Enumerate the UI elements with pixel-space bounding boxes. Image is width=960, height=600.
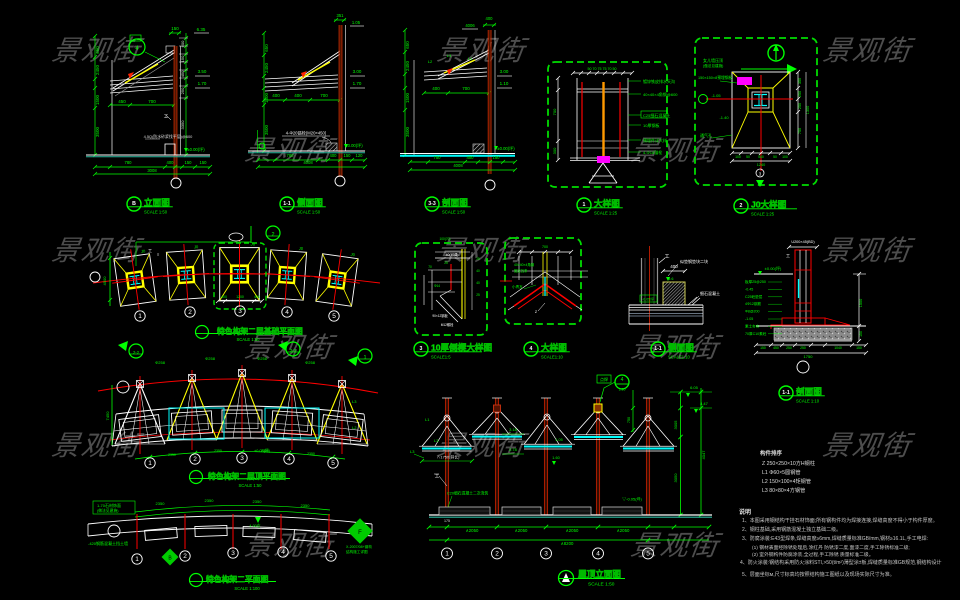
- svg-text:2.78: 2.78: [509, 447, 518, 452]
- svg-text:±0.00(坪): ±0.00(坪): [765, 265, 782, 271]
- svg-text:150×150×8预埋钢板: 150×150×8预埋钢板: [698, 75, 733, 80]
- svg-text:C20细石混凝土二次浇筑: C20细石混凝土二次浇筑: [447, 491, 488, 496]
- svg-text:4008: 4008: [453, 163, 463, 168]
- svg-text:4Φ12钢筋: 4Φ12钢筋: [745, 301, 761, 306]
- svg-text:3: 3: [544, 551, 548, 558]
- svg-text:C25细石混凝土: C25细石混凝土: [643, 112, 670, 118]
- svg-text:1:10: 1:10: [619, 388, 626, 392]
- svg-text:3.18: 3.18: [509, 427, 518, 432]
- svg-text:150: 150: [760, 346, 766, 350]
- svg-text:构件排序: 构件排序: [760, 449, 783, 457]
- svg-text:5: 5: [331, 460, 335, 467]
- svg-text:立面图: 立面图: [144, 197, 170, 208]
- svg-text:L1: L1: [468, 56, 473, 61]
- svg-text:大样图: 大样图: [594, 198, 620, 209]
- svg-text:3: 3: [231, 550, 235, 557]
- svg-text:4: 4: [285, 309, 289, 316]
- svg-text:300: 300: [552, 147, 557, 154]
- svg-text:L2: L2: [352, 425, 357, 430]
- svg-text:2450: 2450: [264, 62, 269, 73]
- svg-text:150: 150: [344, 153, 352, 158]
- svg-text:4.00右: 4.00右: [249, 523, 260, 528]
- svg-text:1500: 1500: [264, 92, 269, 103]
- svg-text:400: 400: [272, 93, 280, 98]
- svg-text:SCALE 1:50: SCALE 1:50: [442, 210, 466, 215]
- svg-text:∧2050: ∧2050: [466, 528, 479, 533]
- svg-text:工: 工: [148, 248, 152, 253]
- svg-text:∧2050: ∧2050: [617, 528, 630, 533]
- svg-text:120: 120: [356, 153, 364, 158]
- svg-text:2450: 2450: [95, 64, 100, 75]
- svg-text:2: 2: [193, 456, 197, 463]
- svg-text:700: 700: [542, 245, 548, 249]
- svg-text:1-1: 1-1: [654, 346, 662, 352]
- svg-text:1、本图采用钢结构干挂石材饰面;所有钢构件均为焊接连接,焊缝: 1、本图采用钢结构干挂石材饰面;所有钢构件均为焊接连接,焊缝高度不得小于构件厚度…: [742, 517, 938, 524]
- svg-text:450: 450: [180, 70, 185, 77]
- svg-text:750: 750: [798, 128, 802, 134]
- svg-text:SCALE1:10: SCALE1:10: [541, 355, 564, 360]
- svg-text:70厚C10素砼: 70厚C10素砼: [745, 331, 767, 336]
- svg-text:L2: L2: [428, 59, 433, 64]
- svg-text:景观街: 景观街: [821, 235, 917, 266]
- svg-text:1500: 1500: [95, 94, 100, 105]
- svg-text:2450: 2450: [405, 60, 410, 71]
- svg-text:L1: L1: [425, 417, 430, 422]
- svg-text:750: 750: [627, 417, 631, 423]
- svg-text:400: 400: [486, 16, 494, 21]
- svg-text:1.10: 1.10: [500, 81, 509, 86]
- svg-text:4008: 4008: [303, 160, 313, 165]
- svg-text:3050: 3050: [673, 473, 678, 483]
- svg-text:150: 150: [859, 331, 863, 337]
- svg-text:L3: L3: [352, 399, 357, 404]
- svg-text:2350: 2350: [253, 499, 263, 504]
- svg-text:侧面图: 侧面图: [297, 197, 323, 208]
- svg-text:4: 4: [287, 456, 291, 463]
- svg-text:∧2050: ∧2050: [566, 528, 579, 533]
- svg-text:B: B: [132, 201, 136, 207]
- svg-text:40×40×4角钢@600: 40×40×4角钢@600: [643, 91, 678, 97]
- svg-text:400: 400: [294, 93, 302, 98]
- svg-text:SCALE 1:25: SCALE 1:25: [594, 211, 618, 216]
- svg-text:1-1: 1-1: [283, 201, 291, 207]
- svg-text:400: 400: [221, 295, 227, 299]
- svg-text:SCALE 1:50: SCALE 1:50: [236, 337, 260, 342]
- svg-text:25: 25: [444, 261, 448, 265]
- svg-text:50: 50: [773, 155, 777, 159]
- svg-text:C25砼垫层: C25砼垫层: [745, 294, 763, 299]
- svg-text:7450: 7450: [105, 411, 110, 421]
- svg-text:工: 工: [164, 114, 169, 119]
- svg-text:固定瓦条: 固定瓦条: [514, 268, 528, 273]
- svg-text:Φ14: Φ14: [434, 284, 440, 288]
- svg-text:400: 400: [432, 86, 440, 91]
- svg-text:侧面图: 侧面图: [668, 342, 694, 353]
- svg-text:3350: 3350: [180, 120, 185, 130]
- svg-text:素土夯实: 素土夯实: [745, 323, 760, 328]
- svg-text:400: 400: [330, 153, 338, 158]
- svg-text:2、钢柱基础,采用钢筋混凝土独立基础二级。: 2、钢柱基础,采用钢筋混凝土独立基础二级。: [742, 526, 841, 533]
- svg-text:250: 250: [180, 87, 185, 94]
- svg-text:600: 600: [180, 40, 185, 47]
- svg-text:3008: 3008: [147, 168, 157, 173]
- svg-text:650: 650: [264, 44, 269, 52]
- svg-text:100: 100: [735, 155, 741, 159]
- svg-text:±0.00(坪): ±0.00(坪): [187, 146, 205, 153]
- svg-text:450: 450: [773, 346, 779, 350]
- svg-text:780: 780: [125, 160, 133, 165]
- svg-text:400: 400: [254, 295, 260, 299]
- svg-text:女儿墙压顶: 女儿墙压顶: [703, 57, 723, 63]
- svg-text:351: 351: [337, 13, 345, 18]
- svg-text:SCALE 1:25: SCALE 1:25: [751, 212, 775, 217]
- svg-text:3500: 3500: [95, 126, 100, 137]
- svg-text:100: 100: [782, 155, 788, 159]
- svg-text:预埋件详大样: 预埋件详大样: [643, 137, 667, 143]
- svg-text:3、防腐涂装:E43型焊条,焊缝高度≥6mm,焊缝质量标准G: 3、防腐涂装:E43型焊条,焊缝高度≥6mm,焊缝质量标准GB/mm,钢材≥16…: [742, 535, 928, 542]
- svg-text:4.47: 4.47: [700, 401, 709, 406]
- svg-text:J0大样图: J0大样图: [751, 199, 787, 210]
- svg-text:2: 2: [740, 203, 743, 209]
- svg-text:2350: 2350: [261, 449, 269, 453]
- svg-text:3.00: 3.00: [500, 69, 509, 74]
- svg-text:150: 150: [200, 160, 208, 165]
- svg-text:2: 2: [183, 553, 187, 560]
- svg-text:1-70石材饰面: 1-70石材饰面: [97, 502, 121, 508]
- svg-text:景观街: 景观街: [243, 530, 339, 561]
- svg-text:5: 5: [332, 313, 336, 320]
- svg-text:700: 700: [320, 93, 328, 98]
- svg-text:10厚钢板: 10厚钢板: [643, 122, 659, 128]
- svg-text:F: F: [358, 530, 362, 536]
- svg-text:Φ258: Φ258: [155, 360, 166, 365]
- svg-text:40×40×4角钢: 40×40×4角钢: [514, 262, 535, 267]
- svg-text:3.00: 3.00: [353, 69, 362, 74]
- svg-text:540: 540: [758, 155, 764, 159]
- svg-text:1: 1: [445, 551, 449, 558]
- svg-text:±0.00(坪): ±0.00(坪): [345, 142, 363, 149]
- svg-text:特色构架二层基础平面图: 特色构架二层基础平面图: [217, 326, 303, 336]
- svg-text:景观街: 景观街: [50, 235, 146, 266]
- svg-text:150: 150: [856, 346, 862, 350]
- svg-text:4.5Q(防水砂浆找平层)@600: 4.5Q(防水砂浆找平层)@600: [144, 134, 194, 139]
- svg-text:250: 250: [798, 91, 802, 97]
- svg-text:40: 40: [476, 281, 480, 285]
- svg-text:Φ258: Φ258: [305, 360, 316, 365]
- svg-text:3: 3: [240, 455, 244, 462]
- svg-text:2350: 2350: [168, 453, 176, 457]
- svg-text:∧8200: ∧8200: [561, 541, 574, 546]
- svg-text:L3 80×80×4方钢管: L3 80×80×4方钢管: [762, 486, 805, 494]
- svg-text:3: 3: [420, 346, 423, 352]
- svg-text:U200×45(BD): U200×45(BD): [791, 240, 815, 244]
- svg-text:(做法见建施): (做法见建施): [97, 508, 119, 513]
- svg-text:细石混凝土: 细石混凝土: [700, 290, 720, 296]
- svg-text:景观街: 景观街: [821, 35, 917, 66]
- svg-text:1: 1: [138, 313, 142, 320]
- svg-text:4: 4: [621, 377, 624, 383]
- svg-text:±0.00(坪): ±0.00(坪): [497, 145, 515, 152]
- svg-text:Z 250×250×10方H钢柱: Z 250×250×10方H钢柱: [762, 459, 815, 467]
- svg-text:SCALE 1:50: SCALE 1:50: [297, 210, 321, 215]
- svg-text:250: 250: [786, 346, 792, 350]
- svg-text:SCALE 1:50: SCALE 1:50: [588, 582, 615, 588]
- svg-text:L3: L3: [434, 438, 439, 443]
- svg-text:景观街: 景观街: [435, 35, 531, 66]
- svg-text:3005: 3005: [673, 420, 678, 430]
- svg-text:(做法见建施): (做法见建施): [703, 63, 723, 68]
- svg-text:70: 70: [428, 265, 432, 269]
- svg-text:-1.40: -1.40: [719, 115, 729, 120]
- svg-text:1500: 1500: [859, 299, 863, 307]
- svg-text:700: 700: [552, 108, 557, 115]
- svg-text:▽-0.05(坪): ▽-0.05(坪): [622, 496, 642, 502]
- svg-text:L2 150×100×4矩钢管: L2 150×100×4矩钢管: [762, 477, 811, 485]
- svg-text:1.05: 1.05: [555, 438, 562, 442]
- svg-text:5: 5: [329, 553, 333, 560]
- svg-text:Φ258: Φ258: [205, 356, 216, 361]
- svg-text:450: 450: [118, 99, 126, 104]
- svg-text:小青瓦: 小青瓦: [512, 284, 523, 289]
- svg-text:4、防火涂装:钢结构采用防火涂料STI,>50(t/m²)薄: 4、防火涂装:钢结构采用防火涂料STI,>50(t/m²)薄型涂±板,焊缝质量标…: [740, 559, 942, 566]
- svg-text:板厚25@250: 板厚25@250: [745, 279, 766, 284]
- svg-text:SCALE 1:100: SCALE 1:100: [234, 586, 260, 591]
- svg-text:-1.05: -1.05: [745, 317, 753, 321]
- svg-text:M12螺栓: M12螺栓: [441, 322, 454, 327]
- svg-text:结构施工详图: 结构施工详图: [346, 549, 368, 554]
- svg-text:2: 2: [271, 232, 274, 238]
- svg-text:650: 650: [405, 41, 410, 49]
- svg-text:5: 5: [646, 551, 650, 558]
- svg-text:2350: 2350: [205, 498, 215, 503]
- svg-text:1500: 1500: [405, 92, 410, 103]
- svg-text:-0.45: -0.45: [745, 287, 753, 291]
- svg-text:L3: L3: [447, 53, 452, 58]
- svg-text:∧2050: ∧2050: [515, 528, 528, 533]
- svg-text:SCALE1:5: SCALE1:5: [431, 355, 451, 360]
- svg-text:1: 1: [135, 556, 139, 563]
- svg-text:3500: 3500: [405, 126, 410, 137]
- svg-text:50 70 75 75 70 50: 50 70 75 75 70 50: [588, 67, 617, 71]
- svg-text:4047: 4047: [701, 450, 706, 460]
- svg-text:通气孔: 通气孔: [700, 132, 712, 138]
- svg-text:(2) 室外钢构件防腐涂装,全过程,手工除锈 质量标准二级。: (2) 室外钢构件防腐涂装,全过程,手工除锈 质量标准二级。: [752, 551, 874, 558]
- svg-text:L1 Φ60×5圆钢管: L1 Φ60×5圆钢管: [762, 468, 801, 476]
- svg-text:400: 400: [167, 160, 175, 165]
- svg-text:4: 4: [596, 551, 600, 558]
- svg-text:屋顶立面图: 屋顶立面图: [578, 568, 621, 579]
- svg-text:Φ258: Φ258: [257, 356, 268, 361]
- svg-text:1.70: 1.70: [353, 81, 362, 86]
- svg-text:-420钢筋混凝土挡土墙: -420钢筋混凝土挡土墙: [88, 540, 128, 546]
- svg-text:似垫钢垫块二块: 似垫钢垫块二块: [680, 258, 708, 264]
- svg-text:Φ8@200: Φ8@200: [745, 310, 760, 314]
- svg-text:700: 700: [148, 99, 156, 104]
- svg-text:1200: 1200: [236, 295, 244, 299]
- svg-text:1: 1: [583, 202, 586, 208]
- svg-text:3-3: 3-3: [428, 201, 436, 207]
- svg-text:4-Φ16锚栓: 4-Φ16锚栓: [643, 149, 662, 155]
- svg-text:1.05: 1.05: [352, 20, 361, 25]
- svg-text:175: 175: [444, 519, 450, 523]
- svg-text:650: 650: [95, 46, 100, 54]
- svg-text:(1) 钢材表面经除锈处理后,涂红丹 防锈漆二度,面漆二度,: (1) 钢材表面经除锈处理后,涂红丹 防锈漆二度,面漆二度,手工除锈标准二级;: [752, 544, 910, 551]
- svg-text:350: 350: [798, 78, 802, 84]
- svg-text:6.05: 6.05: [690, 385, 699, 390]
- svg-text:2350: 2350: [301, 503, 311, 508]
- svg-text:3: 3: [238, 308, 242, 315]
- svg-text:剖面图: 剖面图: [442, 197, 468, 208]
- svg-text:1.70: 1.70: [198, 81, 207, 86]
- svg-text:工: 工: [786, 253, 790, 258]
- svg-text:2350: 2350: [156, 501, 166, 506]
- svg-text:SCALE 1:50: SCALE 1:50: [238, 483, 262, 488]
- svg-text:780: 780: [287, 153, 295, 158]
- svg-text:4500: 4500: [102, 276, 107, 286]
- svg-text:1240: 1240: [757, 163, 765, 167]
- svg-text:4: 4: [530, 346, 533, 352]
- svg-text:SCALE1:10: SCALE1:10: [668, 355, 691, 360]
- svg-text:1300: 1300: [806, 106, 810, 114]
- svg-text:L3: L3: [410, 449, 415, 454]
- svg-text:100(70): 100(70): [440, 237, 451, 241]
- svg-text:6.35: 6.35: [197, 27, 206, 32]
- svg-text:150: 150: [185, 160, 193, 165]
- svg-text:250: 250: [798, 103, 802, 109]
- svg-text:700: 700: [462, 86, 470, 91]
- svg-text:150: 150: [493, 155, 501, 160]
- svg-text:25: 25: [476, 293, 480, 297]
- svg-text:特色构架二平面图: 特色构架二平面图: [206, 574, 269, 584]
- svg-text:1.60: 1.60: [552, 456, 559, 460]
- svg-text:2350: 2350: [214, 449, 222, 453]
- svg-text:点焊: 点焊: [600, 376, 608, 382]
- svg-text:400: 400: [467, 155, 475, 160]
- svg-text:2: 2: [188, 309, 192, 316]
- svg-text:1: 1: [363, 355, 366, 361]
- svg-text:40(可调): 40(可调): [446, 252, 459, 257]
- svg-text:10厚倒楔大样图: 10厚倒楔大样图: [431, 342, 493, 353]
- svg-text:2350: 2350: [307, 452, 315, 456]
- svg-text:景观街: 景观街: [821, 430, 917, 461]
- svg-text:大样图: 大样图: [541, 342, 567, 353]
- svg-text:景观街: 景观街: [50, 430, 146, 461]
- svg-text:150: 150: [171, 26, 179, 31]
- svg-text:40: 40: [476, 269, 480, 273]
- svg-text:150: 150: [180, 55, 185, 62]
- svg-text:SCALE 1:10: SCALE 1:10: [796, 399, 820, 404]
- svg-text:剖面图: 剖面图: [796, 386, 822, 397]
- svg-text:1750: 1750: [804, 354, 814, 359]
- svg-text:2: 2: [495, 551, 499, 558]
- svg-text:特色构架二层顶平面图: 特色构架二层顶平面图: [208, 471, 286, 481]
- svg-text:∧1750(斜长): ∧1750(斜长): [437, 455, 461, 460]
- svg-text:5、层面坐标м,尺寸标高均按照结构施工图纸以及现场实际尺寸为: 5、层面坐标м,尺寸标高均按照结构施工图纸以及现场实际尺寸为准。: [742, 571, 895, 578]
- svg-text:90×12钢板: 90×12钢板: [432, 313, 448, 318]
- svg-text:750: 750: [434, 155, 442, 160]
- svg-text:4: 4: [281, 549, 285, 556]
- svg-text:3.50: 3.50: [198, 69, 207, 74]
- svg-text:4-Φ20锚栓(M20×450): 4-Φ20锚栓(M20×450): [286, 130, 327, 137]
- svg-text:1-1: 1-1: [782, 390, 790, 396]
- svg-text:说明: 说明: [739, 508, 751, 516]
- svg-text:3500: 3500: [264, 124, 269, 135]
- svg-text:25: 25: [476, 257, 480, 261]
- svg-text:50: 50: [746, 155, 750, 159]
- svg-text:X-2007/08+钢构: X-2007/08+钢构: [346, 544, 372, 549]
- svg-text:工: 工: [664, 254, 669, 260]
- svg-text:-1.05: -1.05: [711, 93, 721, 98]
- svg-text:4006: 4006: [465, 23, 475, 28]
- svg-text:-0.05坪: -0.05坪: [642, 297, 654, 302]
- svg-text:1: 1: [148, 460, 152, 467]
- svg-text:SCALE 1:50: SCALE 1:50: [144, 210, 168, 215]
- svg-text:250: 250: [800, 346, 806, 350]
- svg-text:1040: 1040: [834, 346, 842, 350]
- svg-text:镀锌铁皮排水天沟: 镀锌铁皮排水天沟: [643, 78, 675, 84]
